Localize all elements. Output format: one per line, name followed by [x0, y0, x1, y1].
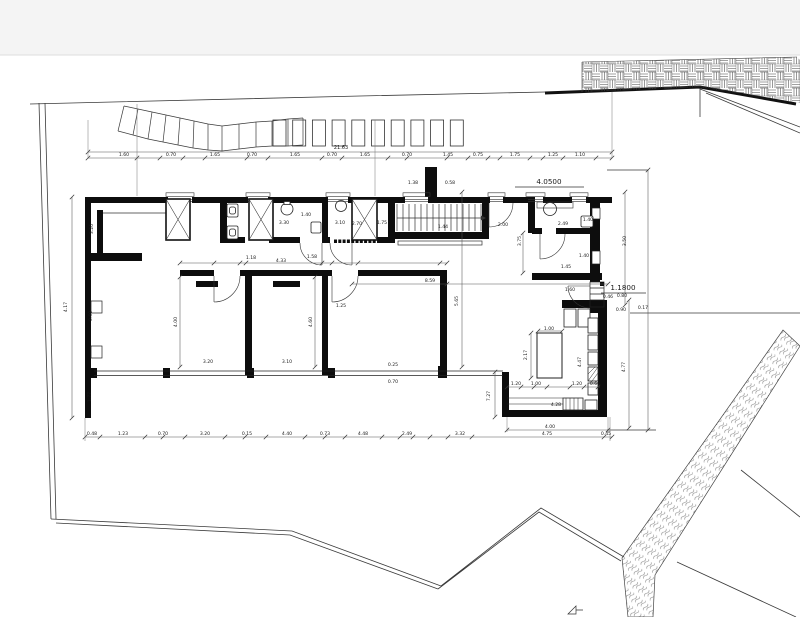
- dimension-label: 4.33: [276, 258, 286, 264]
- dimension-label: 1.20: [572, 381, 582, 387]
- floor-plan-drawing: 4.05001.180021.631.600.701.650.701.650.7…: [0, 0, 800, 617]
- dimension-label: 1.65: [360, 152, 370, 158]
- dimension-label: 0.46: [603, 294, 613, 300]
- terrain-steps-and-pergola: [118, 106, 463, 151]
- shower-box: [249, 199, 273, 240]
- dimension-label: 1.75: [510, 152, 520, 158]
- dimension-label: 0.60: [590, 381, 600, 387]
- dimension-label: 1.20: [511, 381, 521, 387]
- dimension-label: 8.59: [425, 278, 435, 284]
- dimension-label: 0.75: [473, 152, 483, 158]
- dimension-label: 1.38: [408, 180, 418, 186]
- dimension-label: 0.70: [166, 152, 176, 158]
- dimension-label: 0.73: [320, 431, 330, 437]
- dimension-label: 1.77: [87, 392, 93, 402]
- dimension-label: 1.23: [118, 431, 128, 437]
- dimension-label: 4.48: [358, 431, 368, 437]
- dimension-label: 0.80: [617, 293, 627, 299]
- dimension-label: 0.45: [601, 431, 611, 437]
- dimension-label: 7.27: [486, 391, 492, 401]
- dimension-label: 1.00: [544, 326, 554, 332]
- stone-wall-hatch-band: [622, 330, 800, 617]
- level-label: 1.1800: [610, 283, 636, 292]
- dimension-label: 4.75: [542, 431, 552, 437]
- dimension-label: 1.60: [565, 287, 575, 293]
- dimension-label: 2.49: [402, 431, 412, 437]
- site-boundary-lines: [30, 87, 800, 617]
- dimension-label: 2.49: [558, 221, 568, 227]
- dimension-label: 4.00: [173, 317, 179, 327]
- dimension-label: 3.50: [622, 236, 628, 246]
- dimension-label: 1.10: [575, 152, 585, 158]
- dimension-label: 1.25: [336, 303, 346, 309]
- dimension-label: 1.40: [301, 212, 311, 218]
- dimension-label: 0.70: [402, 152, 412, 158]
- dimension-label: 1.44: [438, 224, 448, 230]
- dimension-labels: 4.05001.180021.631.600.701.650.701.650.7…: [63, 145, 648, 437]
- dimension-label: 4.00: [545, 424, 555, 430]
- building-walls: [85, 167, 612, 418]
- dimension-label: 1.65: [290, 152, 300, 158]
- pergola-beams: [273, 120, 463, 146]
- dimension-label: 0.70: [388, 379, 398, 385]
- dimension-label: 1.65: [210, 152, 220, 158]
- dimension-label: 0.48: [87, 431, 97, 437]
- dimension-label: 5.65: [454, 296, 460, 306]
- dimension-label: 2.17: [523, 350, 529, 360]
- dimension-label: 3.32: [455, 431, 465, 437]
- dimension-label: 0.58: [445, 180, 455, 186]
- dimension-label: 4.28: [551, 402, 561, 408]
- dimension-label: 4.47: [577, 357, 583, 367]
- page-top-margin-band: [0, 0, 800, 55]
- dimension-label: 0.70: [327, 152, 337, 158]
- dimension-label: 3.20: [89, 224, 95, 234]
- dimension-label: 4.40: [282, 431, 292, 437]
- dimension-label: 0.70: [247, 152, 257, 158]
- dimension-label: 1.40: [579, 253, 589, 259]
- shower-box: [166, 199, 190, 240]
- dimension-label: 4.77: [621, 362, 627, 372]
- dimension-label: 3.20: [203, 359, 213, 365]
- dimension-label: 3.20: [200, 431, 210, 437]
- dimension-label: 1.25: [548, 152, 558, 158]
- terrain-steps-fan: [118, 106, 303, 151]
- dimension-label: 1.18: [246, 255, 256, 261]
- dimension-label: 3.30: [279, 220, 289, 226]
- masonry-weave-band: [582, 57, 800, 103]
- dimension-label: 1.00: [531, 381, 541, 387]
- level-label: 4.0500: [536, 177, 562, 186]
- dimension-label: 1.75: [377, 220, 387, 226]
- stove: [563, 398, 597, 410]
- dimension-label: 0.25: [388, 362, 398, 368]
- dimension-label: 0.70: [158, 431, 168, 437]
- section-marker: [568, 606, 583, 614]
- dimension-label: 0.60: [88, 311, 94, 321]
- dimension-label: 0.90: [616, 307, 626, 313]
- dimension-label: 3.10: [282, 359, 292, 365]
- dimension-label: 1.58: [307, 254, 317, 260]
- appliance-hatched: [588, 367, 598, 381]
- document-page: 4.05001.180021.631.600.701.650.701.650.7…: [0, 0, 800, 617]
- shower-box: [352, 199, 377, 240]
- dimension-label: 4.60: [308, 317, 314, 327]
- dimension-label: 4.17: [63, 302, 69, 312]
- dimension-label: 1.45: [561, 264, 571, 270]
- dimension-label: 0.17: [638, 305, 648, 311]
- dimension-label: 1.60: [119, 152, 129, 158]
- dimension-label: 3.75: [517, 236, 523, 246]
- dimension-label: 1.40: [583, 217, 593, 223]
- dimension-label: 2.00: [498, 222, 508, 228]
- dimension-label: 1.45: [443, 152, 453, 158]
- overall-dimension-label: 21.63: [334, 145, 348, 151]
- dimension-label: 0.15: [242, 431, 252, 437]
- dimension-label: 2.70: [352, 221, 362, 227]
- dimension-label: 3.10: [335, 220, 345, 226]
- kitchen-island: [537, 333, 562, 378]
